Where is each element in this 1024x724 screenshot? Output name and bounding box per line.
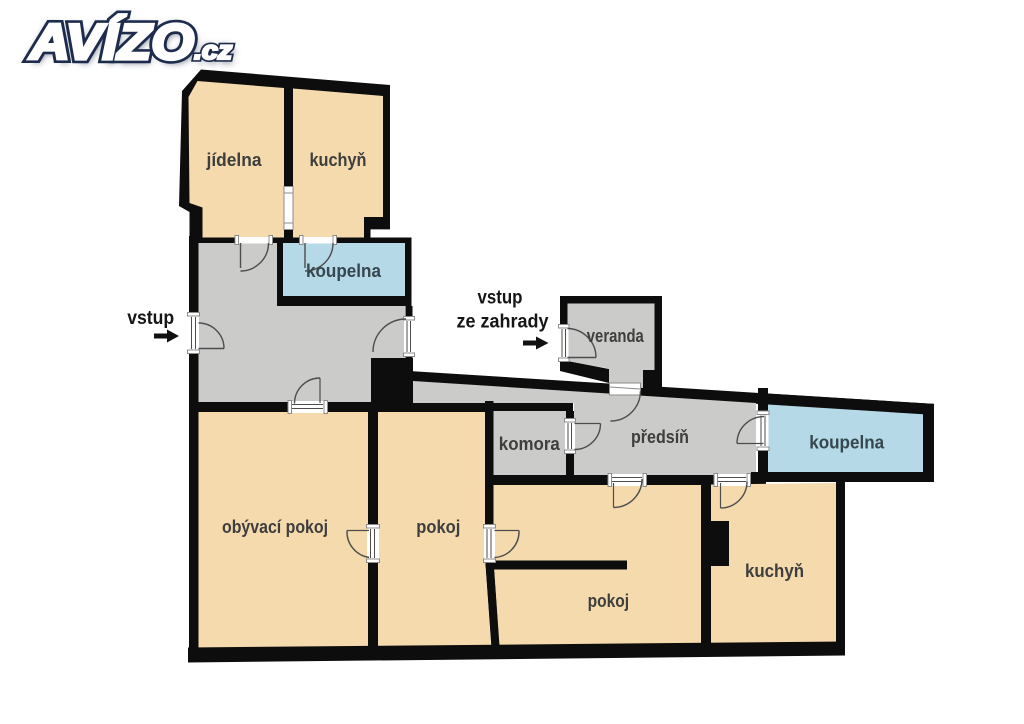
svg-text:veranda: veranda bbox=[587, 325, 645, 346]
svg-text:obývací pokoj: obývací pokoj bbox=[222, 516, 328, 537]
svg-text:ze zahrady: ze zahrady bbox=[457, 311, 549, 333]
svg-text:komora: komora bbox=[499, 433, 561, 454]
svg-text:jídelna: jídelna bbox=[206, 149, 263, 170]
svg-text:kuchyň: kuchyň bbox=[310, 149, 367, 170]
svg-text:pokoj: pokoj bbox=[588, 590, 630, 611]
svg-text:kuchyň: kuchyň bbox=[745, 560, 804, 581]
svg-text:vstup: vstup bbox=[478, 287, 523, 309]
svg-text:vstup: vstup bbox=[127, 307, 174, 329]
svg-text:pokoj: pokoj bbox=[416, 516, 460, 537]
svg-text:koupelna: koupelna bbox=[809, 432, 885, 453]
svg-text:předsíň: předsíň bbox=[631, 426, 689, 447]
svg-text:koupelna: koupelna bbox=[306, 260, 382, 281]
